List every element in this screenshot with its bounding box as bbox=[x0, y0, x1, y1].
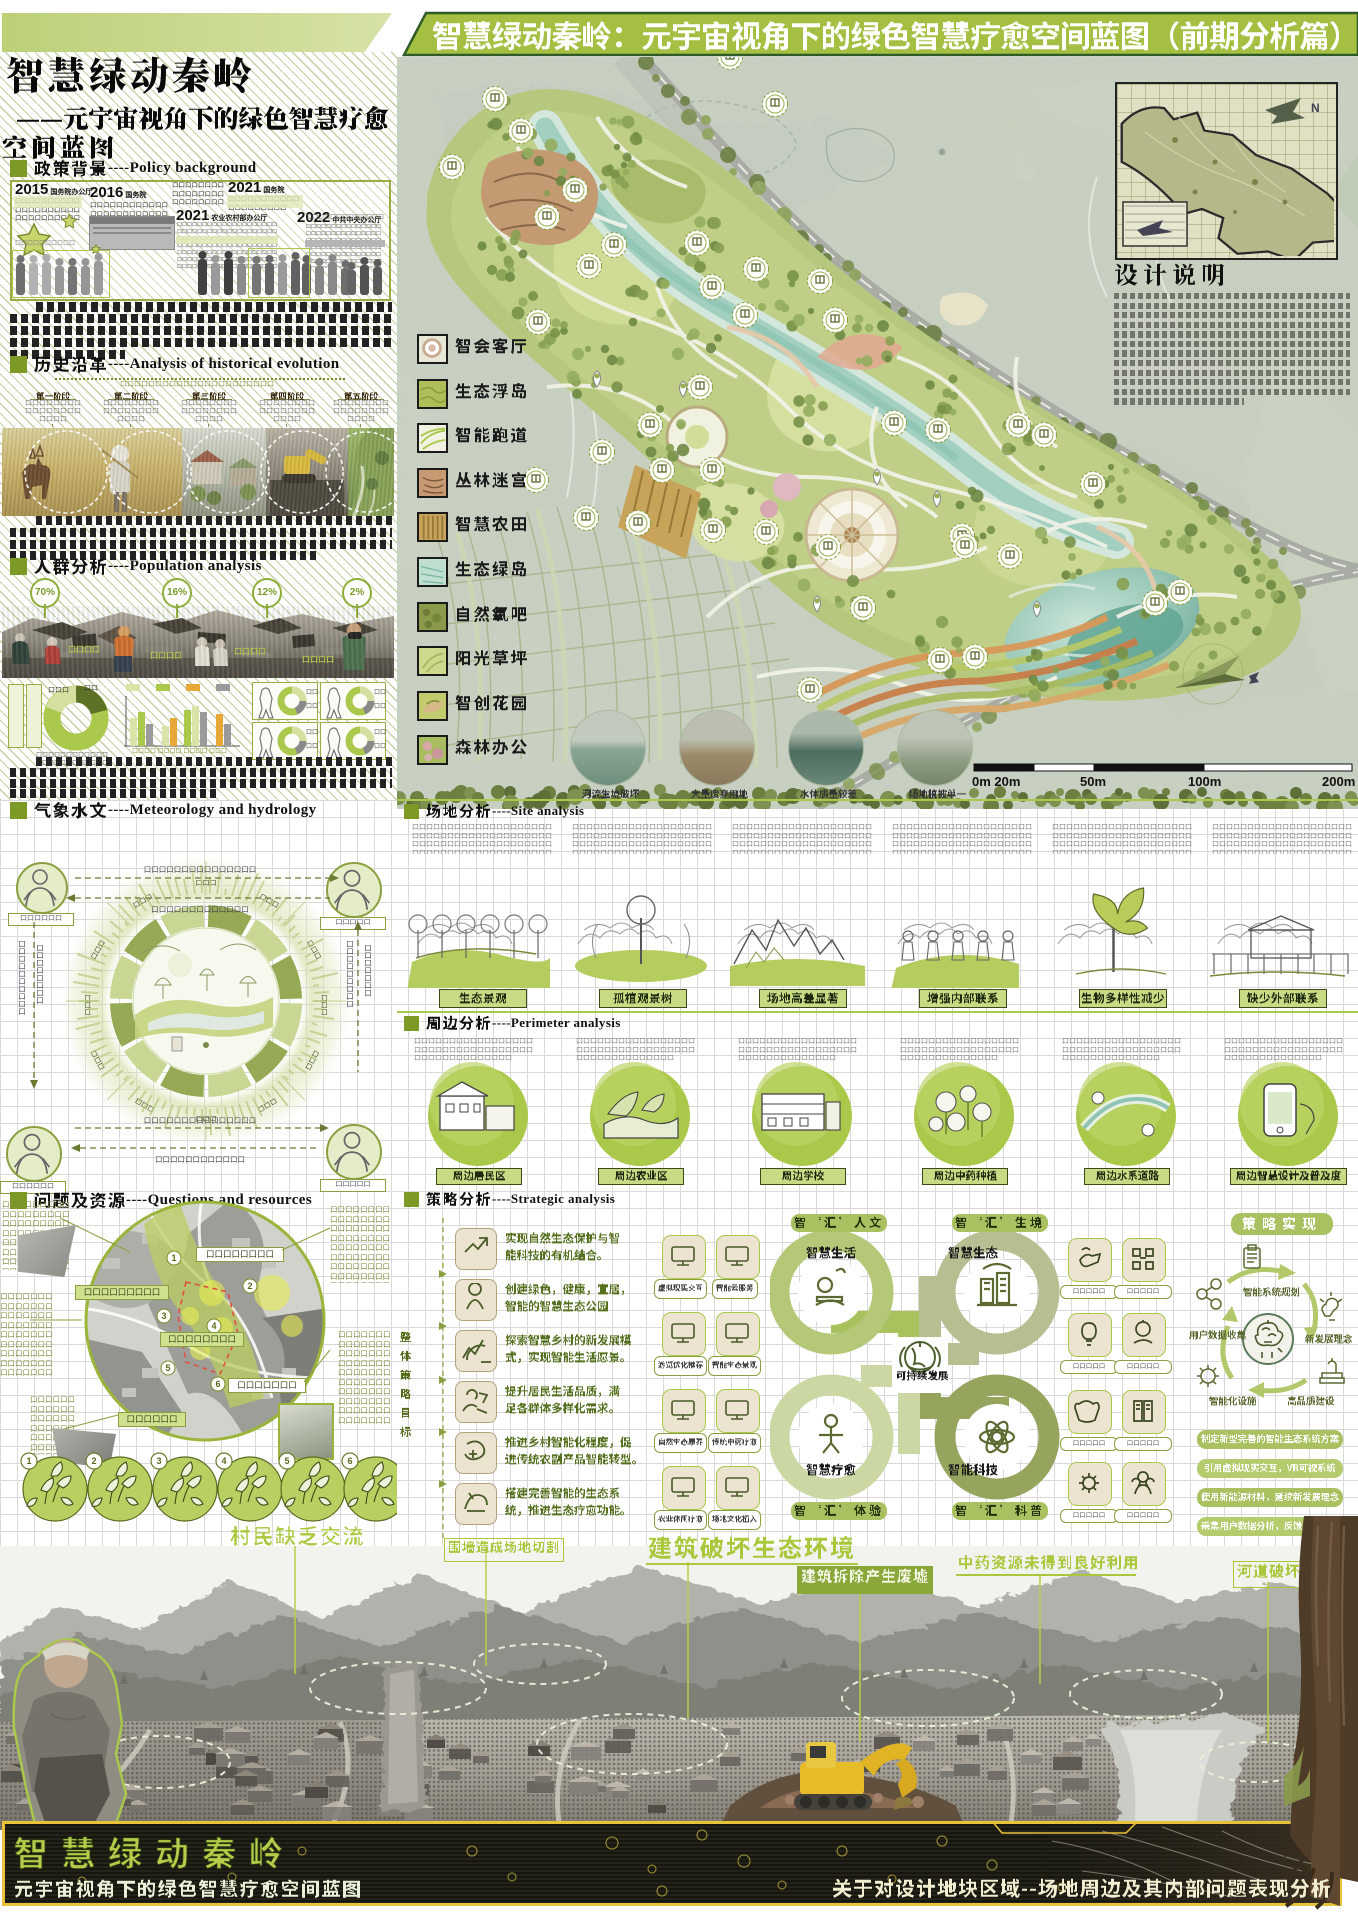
svg-text:1: 1 bbox=[26, 1456, 31, 1466]
svg-text:100m: 100m bbox=[1188, 774, 1221, 789]
svg-text:口口: 口口 bbox=[374, 743, 386, 750]
svg-text:50m: 50m bbox=[1080, 774, 1106, 789]
svg-text:口口口口口口口口口口口口口口口: 口口口口口口口口口口口口口口口 bbox=[144, 1116, 257, 1125]
svg-text:3: 3 bbox=[156, 1456, 161, 1466]
svg-text:口口: 口口 bbox=[374, 689, 386, 696]
svg-text:5: 5 bbox=[284, 1456, 289, 1466]
svg-text:口口口口口口口口口口口口口口口: 口口口口口口口口口口口口口口口 bbox=[144, 865, 257, 874]
svg-text:6: 6 bbox=[347, 1456, 352, 1466]
svg-text:200m: 200m bbox=[1322, 774, 1355, 789]
svg-text:口口口口口口口: 口口口口口口口 bbox=[364, 944, 373, 997]
svg-text:2: 2 bbox=[91, 1456, 96, 1466]
svg-text:口口口口 口口口口 口口口口 口口口: 口口口口 口口口口 口口口口 口口口 bbox=[132, 748, 227, 754]
svg-text:口口口口口口口口: 口口口口口口口口 bbox=[36, 944, 45, 1004]
svg-text:口口: 口口 bbox=[306, 743, 318, 750]
svg-text:N: N bbox=[1311, 101, 1320, 115]
svg-text:口口: 口口 bbox=[374, 729, 386, 736]
svg-text:口口: 口口 bbox=[374, 703, 386, 710]
svg-text:0m 20m: 0m 20m bbox=[972, 774, 1020, 789]
svg-text:口口口口口口口口口口: 口口口口口口口口口口 bbox=[18, 940, 27, 1015]
svg-text:口口: 口口 bbox=[306, 703, 318, 710]
svg-text:口口口口口口口口口口口口口: 口口口口口口口口口口口口口 bbox=[151, 905, 249, 914]
svg-text:口口口口口口口口口口口口: 口口口口口口口口口口口口 bbox=[155, 1155, 245, 1164]
svg-text:口口口: 口口口 bbox=[48, 686, 69, 694]
svg-text:口口: 口口 bbox=[306, 689, 318, 696]
svg-text:口口: 口口 bbox=[306, 729, 318, 736]
svg-text:口口口口口口口口口: 口口口口口口口口口 bbox=[346, 940, 355, 1008]
svg-text:4: 4 bbox=[221, 1456, 226, 1466]
svg-text:口口: 口口 bbox=[84, 684, 98, 692]
